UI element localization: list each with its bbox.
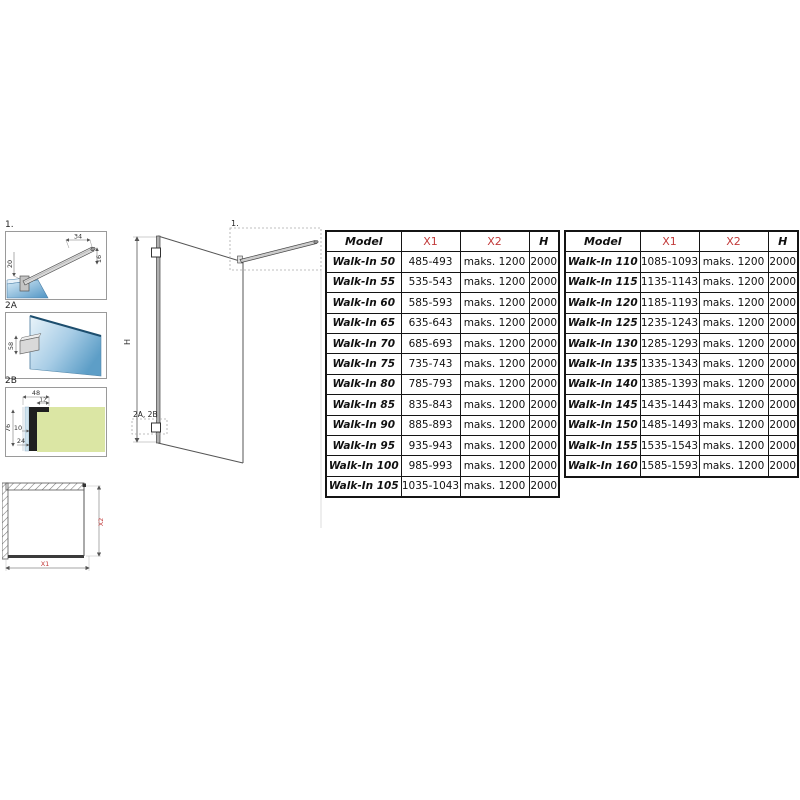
- elevation-diagram: H 1. 2A, 2B: [120, 216, 325, 534]
- table-header-row: ModelX1X2H: [326, 231, 559, 252]
- dim-text-76: 76: [6, 424, 12, 432]
- table-row: Walk-In 1451435-1443maks. 12002000: [565, 395, 798, 415]
- value-cell: maks. 1200: [460, 415, 529, 435]
- value-cell: 2000: [768, 354, 798, 374]
- value-cell: maks. 1200: [699, 272, 768, 292]
- table-header-row: ModelX1X2H: [565, 231, 798, 252]
- value-cell: 2000: [529, 272, 559, 292]
- spec-table-2-wrap: ModelX1X2HWalk-In 1101085-1093maks. 1200…: [564, 230, 799, 478]
- value-cell: 2000: [529, 333, 559, 353]
- value-cell: 2000: [529, 293, 559, 313]
- dim-text-48: 48: [32, 389, 40, 397]
- detail-2b-box: 48 12 76 10 24: [5, 387, 107, 457]
- wall-left: [2, 483, 8, 559]
- model-cell: Walk-In 120: [565, 293, 640, 313]
- value-cell: maks. 1200: [460, 293, 529, 313]
- model-cell: Walk-In 80: [326, 374, 401, 394]
- column-header-x1: X1: [640, 231, 699, 252]
- dim-text-x1: X1: [41, 560, 50, 568]
- plan-view: X2 X1: [2, 466, 117, 576]
- model-cell: Walk-In 70: [326, 333, 401, 353]
- dim-text-h: H: [123, 339, 132, 345]
- column-header-x2: X2: [699, 231, 768, 252]
- value-cell: maks. 1200: [460, 435, 529, 455]
- bar-mount-plan: [83, 484, 87, 488]
- dim-text-12: 12: [40, 398, 47, 404]
- value-cell: 535-543: [401, 272, 460, 292]
- plan-view-diagram: X2 X1: [2, 466, 117, 576]
- value-cell: maks. 1200: [699, 395, 768, 415]
- table-row: Walk-In 65635-643maks. 12002000: [326, 313, 559, 333]
- elevation-view: H 1. 2A, 2B: [120, 216, 325, 534]
- dim-leader-20: [14, 276, 20, 279]
- wall-bracket-top: [152, 248, 161, 257]
- model-cell: Walk-In 100: [326, 456, 401, 476]
- dim-text-20: 20: [6, 260, 14, 268]
- table-row: Walk-In 90885-893maks. 12002000: [326, 415, 559, 435]
- table-row: Walk-In 95935-943maks. 12002000: [326, 435, 559, 455]
- value-cell: 2000: [529, 354, 559, 374]
- table-row: Walk-In 55535-543maks. 12002000: [326, 272, 559, 292]
- value-cell: maks. 1200: [460, 395, 529, 415]
- model-cell: Walk-In 145: [565, 395, 640, 415]
- glass-section: [25, 407, 29, 451]
- value-cell: 835-843: [401, 395, 460, 415]
- value-cell: 2000: [768, 415, 798, 435]
- model-cell: Walk-In 75: [326, 354, 401, 374]
- dim-ext-34a: [66, 240, 69, 248]
- value-cell: 2000: [768, 333, 798, 353]
- table-row: Walk-In 1251235-1243maks. 12002000: [565, 313, 798, 333]
- value-cell: 2000: [529, 456, 559, 476]
- table-row: Walk-In 1601585-1593maks. 12002000: [565, 456, 798, 477]
- value-cell: 2000: [768, 456, 798, 477]
- value-cell: 2000: [529, 252, 559, 272]
- value-cell: 2000: [529, 395, 559, 415]
- value-cell: maks. 1200: [460, 252, 529, 272]
- value-cell: 2000: [529, 476, 559, 497]
- value-cell: 1535-1543: [640, 435, 699, 455]
- column-header-h: H: [529, 231, 559, 252]
- value-cell: maks. 1200: [460, 476, 529, 497]
- table-row: Walk-In 70685-693maks. 12002000: [326, 333, 559, 353]
- dim-text-10: 10: [14, 424, 22, 432]
- spec-table-1: ModelX1X2HWalk-In 50485-493maks. 1200200…: [325, 230, 560, 498]
- detail-1-label: 1.: [5, 221, 14, 230]
- support-bar: [23, 247, 94, 285]
- detail-1-ref-label: 1.: [231, 219, 239, 228]
- value-cell: 885-893: [401, 415, 460, 435]
- table-row: Walk-In 100985-993maks. 12002000: [326, 456, 559, 476]
- wall-bracket-bottom: [152, 423, 161, 432]
- value-cell: 2000: [529, 313, 559, 333]
- detail-2a-diagram: 58: [6, 313, 106, 378]
- spec-table-2: ModelX1X2HWalk-In 1101085-1093maks. 1200…: [564, 230, 799, 478]
- value-cell: 2000: [768, 435, 798, 455]
- value-cell: 1385-1393: [640, 374, 699, 394]
- table-row: Walk-In 1351335-1343maks. 12002000: [565, 354, 798, 374]
- value-cell: 2000: [529, 415, 559, 435]
- detail-1-callout-box: [230, 228, 321, 270]
- model-cell: Walk-In 125: [565, 313, 640, 333]
- value-cell: maks. 1200: [460, 374, 529, 394]
- model-cell: Walk-In 150: [565, 415, 640, 435]
- column-header-model: Model: [565, 231, 640, 252]
- wall-profile: [29, 407, 37, 451]
- value-cell: maks. 1200: [699, 293, 768, 313]
- table-row: Walk-In 50485-493maks. 12002000: [326, 252, 559, 272]
- model-cell: Walk-In 160: [565, 456, 640, 477]
- value-cell: maks. 1200: [460, 456, 529, 476]
- model-cell: Walk-In 140: [565, 374, 640, 394]
- value-cell: 1485-1493: [640, 415, 699, 435]
- model-cell: Walk-In 65: [326, 313, 401, 333]
- value-cell: 2000: [529, 374, 559, 394]
- model-cell: Walk-In 135: [565, 354, 640, 374]
- model-cell: Walk-In 130: [565, 333, 640, 353]
- value-cell: maks. 1200: [460, 313, 529, 333]
- value-cell: maks. 1200: [699, 374, 768, 394]
- spec-table-1-wrap: ModelX1X2HWalk-In 50485-493maks. 1200200…: [325, 230, 560, 498]
- value-cell: maks. 1200: [699, 415, 768, 435]
- value-cell: 1035-1043: [401, 476, 460, 497]
- value-cell: 735-743: [401, 354, 460, 374]
- value-cell: 2000: [768, 374, 798, 394]
- model-cell: Walk-In 95: [326, 435, 401, 455]
- table-row: Walk-In 60585-593maks. 12002000: [326, 293, 559, 313]
- model-cell: Walk-In 55: [326, 272, 401, 292]
- value-cell: 1135-1143: [640, 272, 699, 292]
- table-row: Walk-In 1401385-1393maks. 12002000: [565, 374, 798, 394]
- value-cell: 2000: [768, 293, 798, 313]
- dim-text-x2: X2: [97, 518, 105, 527]
- value-cell: maks. 1200: [699, 333, 768, 353]
- detail-1-box: 20 34 16: [5, 231, 107, 300]
- column-header-x2: X2: [460, 231, 529, 252]
- support-bar-line: [24, 249, 93, 283]
- value-cell: maks. 1200: [699, 456, 768, 477]
- value-cell: 1185-1193: [640, 293, 699, 313]
- model-cell: Walk-In 50: [326, 252, 401, 272]
- column-header-x1: X1: [401, 231, 460, 252]
- model-cell: Walk-In 105: [326, 476, 401, 497]
- table-row: Walk-In 1501485-1493maks. 12002000: [565, 415, 798, 435]
- value-cell: maks. 1200: [460, 272, 529, 292]
- dim-text-16: 16: [95, 255, 103, 263]
- detail-2b-label: 2B: [5, 377, 17, 386]
- value-cell: 685-693: [401, 333, 460, 353]
- wall-section: [37, 407, 105, 452]
- column-header-h: H: [768, 231, 798, 252]
- detail-1-diagram: 20 34 16: [6, 232, 106, 299]
- column-header-model: Model: [326, 231, 401, 252]
- detail-2b-diagram: 48 12 76 10 24: [6, 388, 106, 456]
- model-cell: Walk-In 155: [565, 435, 640, 455]
- table-row: Walk-In 1551535-1543maks. 12002000: [565, 435, 798, 455]
- value-cell: 1585-1593: [640, 456, 699, 477]
- model-cell: Walk-In 90: [326, 415, 401, 435]
- value-cell: 2000: [768, 272, 798, 292]
- value-cell: maks. 1200: [460, 354, 529, 374]
- value-cell: 1285-1293: [640, 333, 699, 353]
- value-cell: maks. 1200: [699, 354, 768, 374]
- table-row: Walk-In 85835-843maks. 12002000: [326, 395, 559, 415]
- table-row: Walk-In 1051035-1043maks. 12002000: [326, 476, 559, 497]
- support-bar-elevation: [240, 241, 317, 263]
- value-cell: 1435-1443: [640, 395, 699, 415]
- panel-bottom-edge: [158, 443, 243, 463]
- value-cell: 635-643: [401, 313, 460, 333]
- value-cell: maks. 1200: [699, 252, 768, 272]
- value-cell: 2000: [768, 313, 798, 333]
- value-cell: maks. 1200: [699, 435, 768, 455]
- glass-panel-plan: [8, 555, 84, 558]
- value-cell: 2000: [529, 435, 559, 455]
- model-cell: Walk-In 60: [326, 293, 401, 313]
- profile-step: [37, 407, 49, 412]
- model-cell: Walk-In 85: [326, 395, 401, 415]
- value-cell: 585-593: [401, 293, 460, 313]
- wall-top: [6, 483, 84, 490]
- detail-2a-label: 2A: [5, 302, 17, 311]
- value-cell: 485-493: [401, 252, 460, 272]
- value-cell: 1335-1343: [640, 354, 699, 374]
- table-row: Walk-In 1101085-1093maks. 12002000: [565, 252, 798, 272]
- detail-2ab-ref-label: 2A, 2B: [133, 410, 158, 419]
- value-cell: 1085-1093: [640, 252, 699, 272]
- value-cell: 785-793: [401, 374, 460, 394]
- value-cell: 2000: [768, 252, 798, 272]
- detail-2a-box: 58: [5, 312, 107, 379]
- value-cell: maks. 1200: [699, 313, 768, 333]
- table-row: Walk-In 80785-793maks. 12002000: [326, 374, 559, 394]
- dim-text-34: 34: [74, 233, 82, 241]
- table-row: Walk-In 1301285-1293maks. 12002000: [565, 333, 798, 353]
- model-cell: Walk-In 115: [565, 272, 640, 292]
- dim-ext-34b: [90, 240, 92, 247]
- dim-text-24: 24: [17, 437, 25, 445]
- table-row: Walk-In 1201185-1193maks. 12002000: [565, 293, 798, 313]
- value-cell: 985-993: [401, 456, 460, 476]
- table-row: Walk-In 75735-743maks. 12002000: [326, 354, 559, 374]
- model-cell: Walk-In 110: [565, 252, 640, 272]
- dim-text-58: 58: [7, 342, 15, 350]
- value-cell: 2000: [768, 395, 798, 415]
- value-cell: 935-943: [401, 435, 460, 455]
- value-cell: maks. 1200: [460, 333, 529, 353]
- table-row: Walk-In 1151135-1143maks. 12002000: [565, 272, 798, 292]
- value-cell: 1235-1243: [640, 313, 699, 333]
